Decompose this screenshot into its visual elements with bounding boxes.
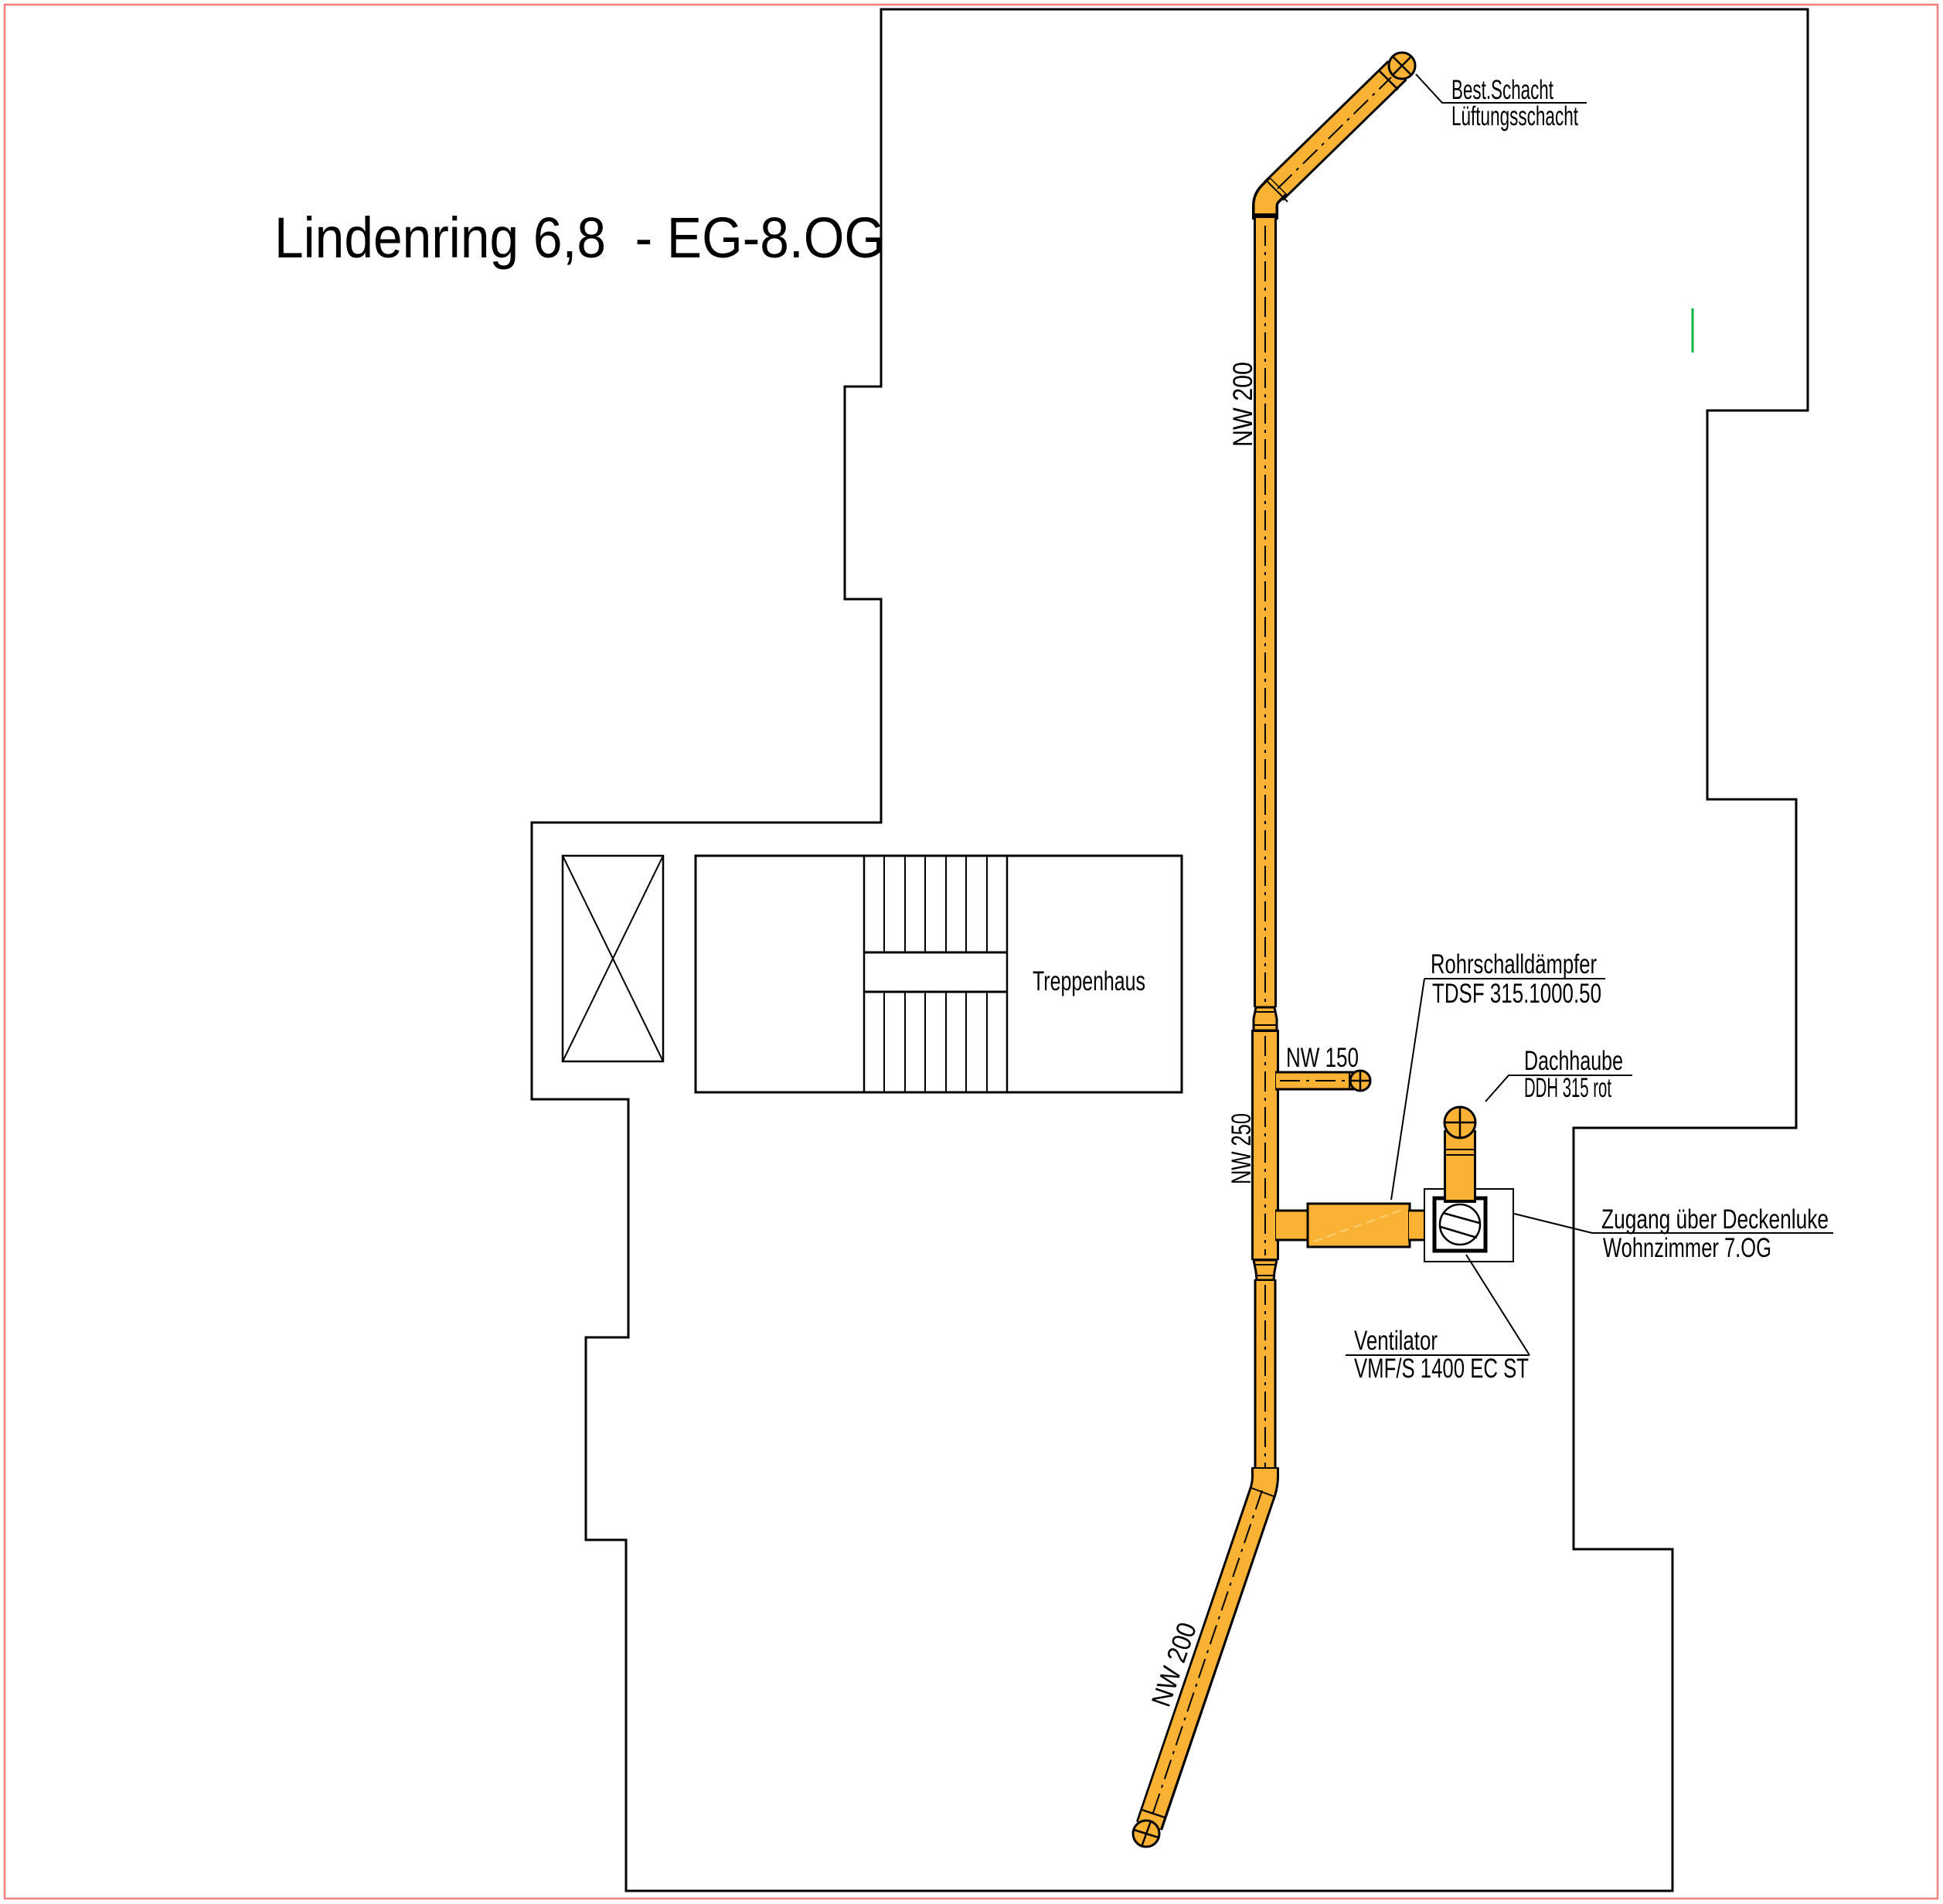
duct-transition-nw200-nw250 (1254, 1007, 1277, 1030)
nw150-label: NW 150 (1286, 1043, 1359, 1073)
zugang-line1: Zugang über Deckenluke (1601, 1204, 1829, 1235)
ventilator-line1: Ventilator (1354, 1326, 1438, 1356)
duct-reducer-nw250-nw200 (1254, 1260, 1277, 1280)
building-outline (532, 9, 1808, 1891)
annotation-dachhaube: Dachhaube DDH 315 rot (1485, 1046, 1632, 1103)
best-schacht-line2: Lüftungsschacht (1451, 101, 1578, 131)
stair-flight-boundaries (864, 856, 1007, 1092)
duct-top-diagonal (1252, 53, 1415, 220)
ventilator-line2: VMF/S 1400 EC ST (1354, 1354, 1529, 1384)
treppenhaus-label: Treppenhaus (1033, 966, 1145, 996)
dachhaube-line1: Dachhaube (1524, 1046, 1623, 1076)
nw200-upper-label: NW 200 (1228, 362, 1258, 447)
stair-landing (864, 952, 1007, 992)
annotation-zugang: Zugang über Deckenluke Wohnzimmer 7.OG (1514, 1204, 1833, 1263)
dachhaube-line2: DDH 315 rot (1524, 1073, 1611, 1103)
drawing-title: Lindenring 6,8 - EG-8.OG (274, 206, 885, 270)
rohrschalldaempfer-line2: TDSF 315.1000.50 (1432, 979, 1601, 1009)
stair-treads-upper (884, 856, 987, 952)
elevator-shaft (563, 856, 663, 1061)
zugang-line2: Wohnzimmer 7.OG (1603, 1233, 1771, 1263)
dachhaube-stack (1444, 1107, 1476, 1203)
annotation-ventilator: Ventilator VMF/S 1400 EC ST (1346, 1255, 1530, 1384)
annotation-best-schacht: Best.Schacht Lüftungsschacht (1416, 74, 1587, 131)
staircase: Treppenhaus (696, 856, 1182, 1092)
floorplan-canvas: Treppenhaus (0, 0, 1943, 1904)
rohrschalldaempfer-line1: Rohrschalldämpfer (1431, 949, 1597, 979)
duct-silencer-run (1275, 1204, 1433, 1247)
duct-bottom-diagonal (1133, 1467, 1274, 1847)
nw250-label: NW 250 (1227, 1113, 1257, 1184)
stair-treads-lower (884, 992, 987, 1092)
duct-branch-nw150 (1275, 1071, 1370, 1091)
